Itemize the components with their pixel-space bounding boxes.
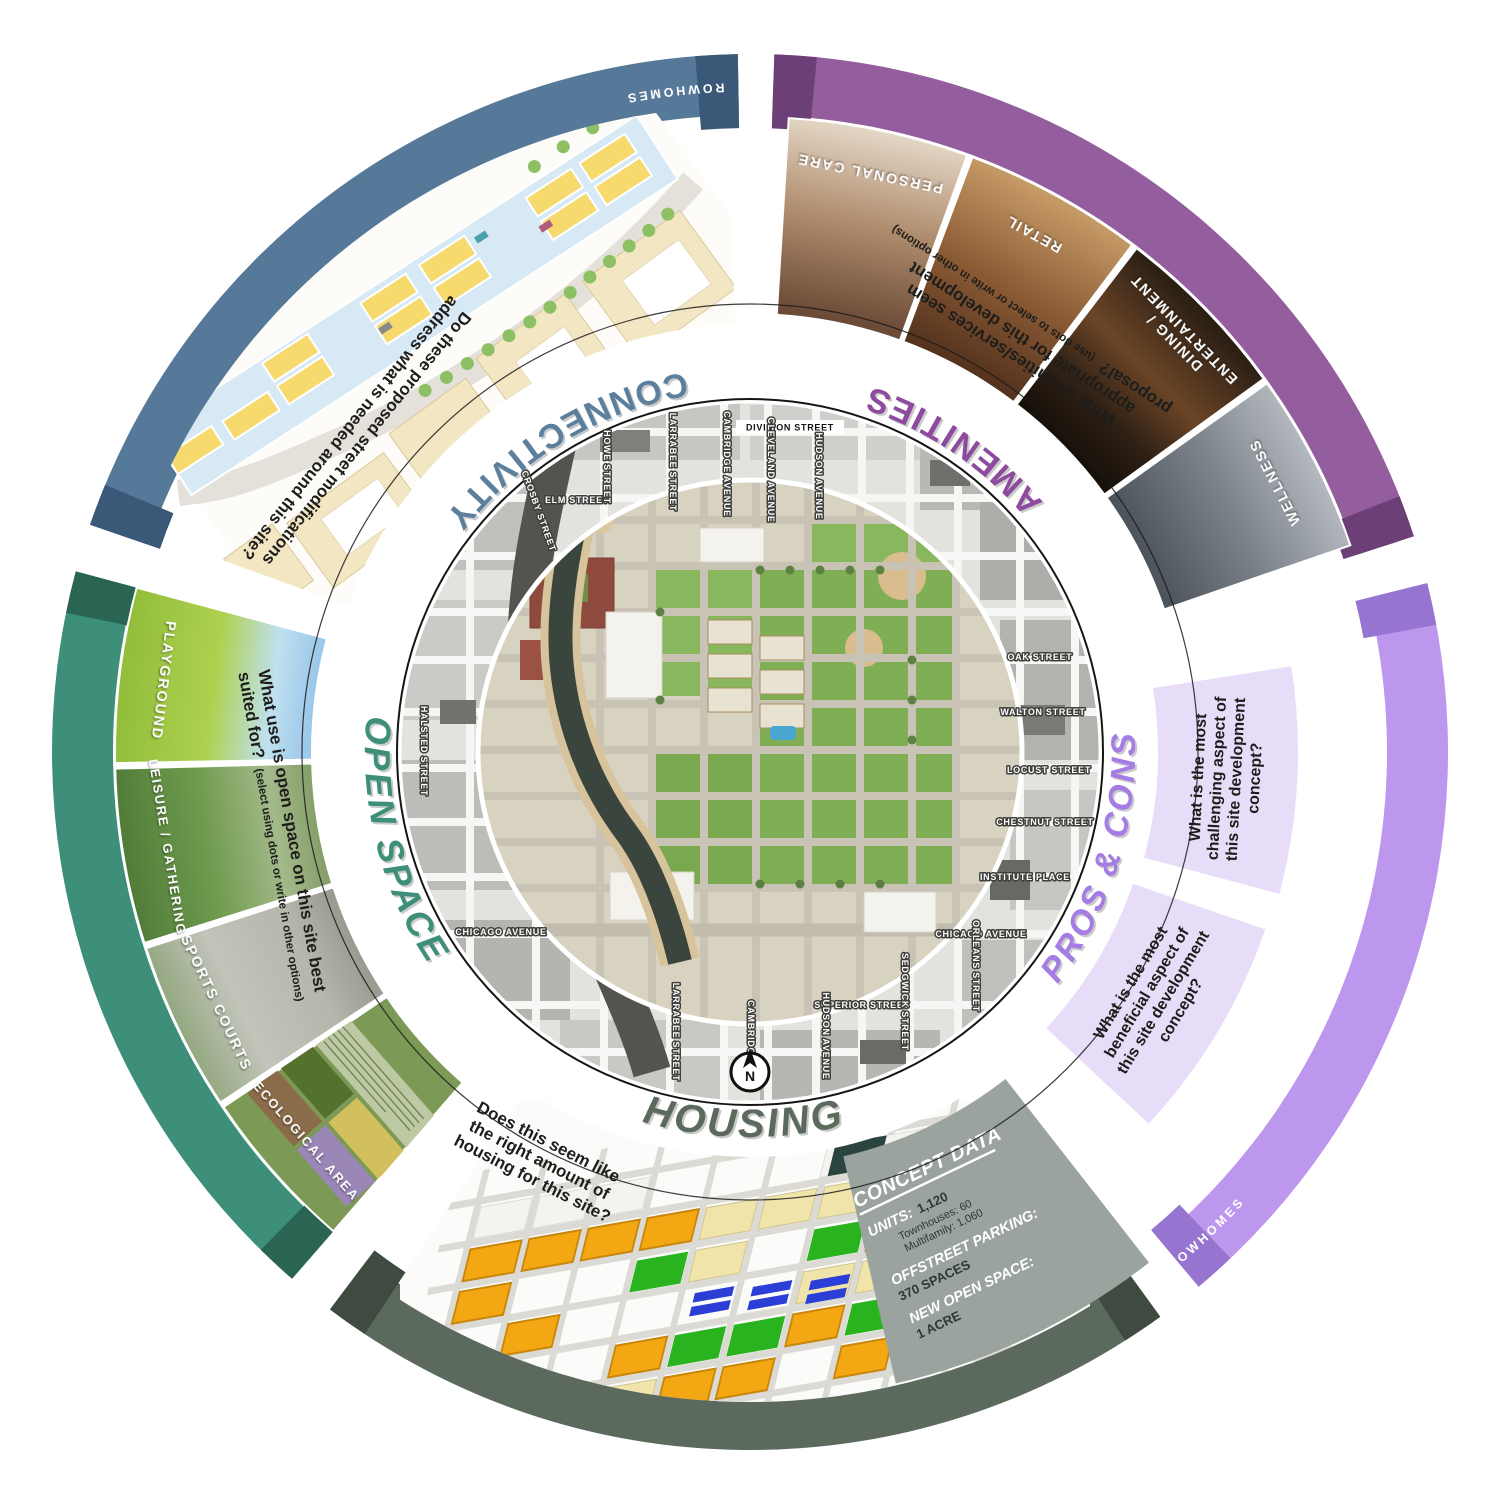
street-label: DIVISION STREET [736,420,844,434]
street-label: SEDGWICK STREET [900,953,910,1051]
compass-letter: N [745,1068,755,1084]
street-label: HALSTED STREET [419,706,429,796]
street-label: HOWE STREET [602,430,612,504]
street-label: ELM STREET [545,495,609,505]
street-label: HUDSON AVENUE [814,432,824,519]
street-label: LOCUST STREET [1007,765,1091,775]
street-label: CHICAGO AVENUE [455,927,546,937]
photo-playground [115,588,327,763]
aerial-map: DIVISION STREET ELM STREET HOWE STREET L… [397,399,1103,1105]
street-label: CHESTNUT STREET [996,817,1094,827]
street-label: ORLEANS STREET [971,920,981,1012]
street-label: INSTITUTE PLACE [980,872,1070,882]
street-label: OAK STREET [1007,652,1072,662]
wheel-svg: ROWHOMES ROWHOMES [0,0,1500,1500]
street-label: HUDSON AVENUE [821,992,831,1079]
street-label: CLEVELAND AVENUE [766,417,776,522]
street-label: LARRABEE STREET [671,983,681,1082]
street-label: CAMBRIDGE AVENUE [722,411,732,517]
street-label: LARRABEE STREET [668,413,678,512]
svg-text:DIVISION STREET: DIVISION STREET [746,423,834,433]
street-label: WALTON STREET [1000,707,1085,717]
engagement-wheel-poster: ROWHOMES ROWHOMES [0,0,1500,1500]
